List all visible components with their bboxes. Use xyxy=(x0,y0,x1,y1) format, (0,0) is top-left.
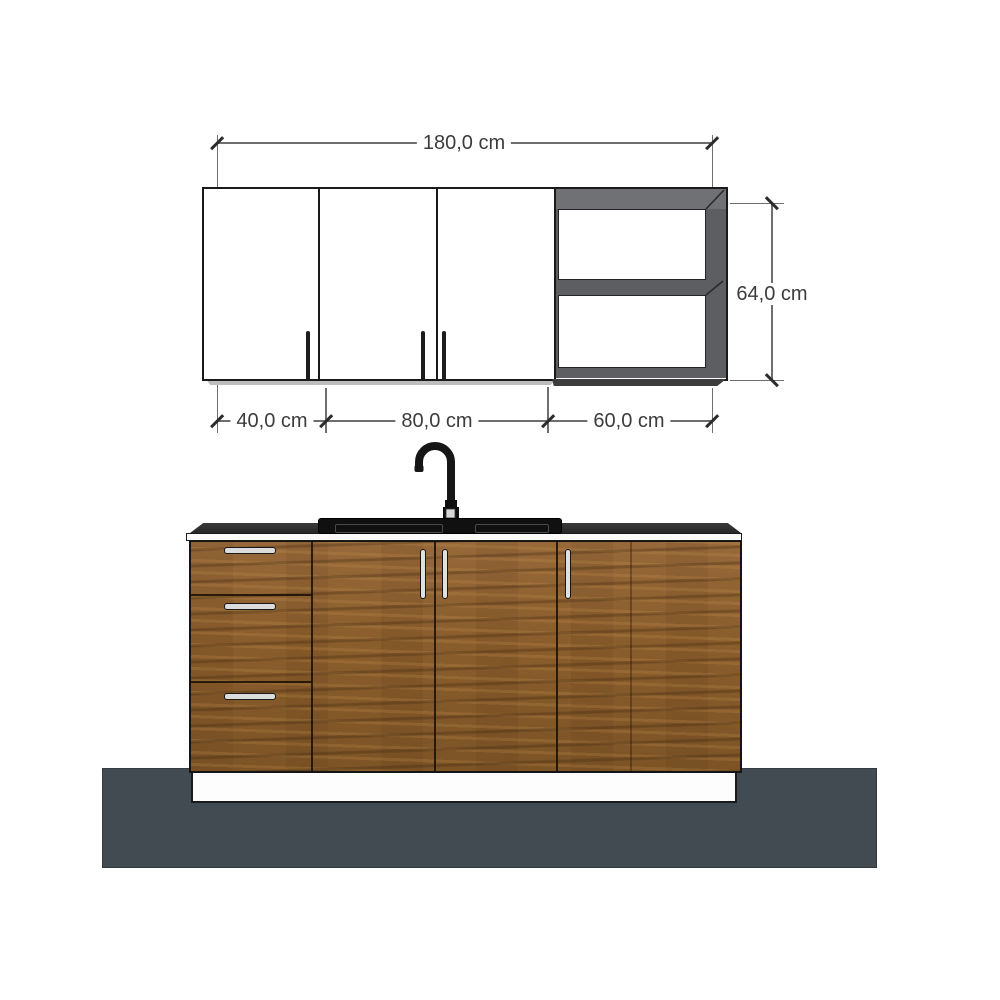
wall-cabinet-divider xyxy=(318,189,320,379)
sink-basin-outline xyxy=(475,524,549,533)
extension-line xyxy=(325,388,327,433)
wall-door-handle-2 xyxy=(421,331,425,384)
drawer-divider xyxy=(189,594,312,596)
extension-line xyxy=(730,380,784,382)
wall-cabinet-divider xyxy=(436,189,438,379)
faucet xyxy=(405,436,469,522)
base-door-handle-2 xyxy=(442,549,448,599)
shelf-unit-shadow xyxy=(552,379,726,386)
wall-door-handle-1 xyxy=(306,331,310,384)
dimension-label-total-width: 180,0 cm xyxy=(417,132,511,154)
wall-door-handle-3 xyxy=(442,331,446,384)
base-cabinet-plinth xyxy=(191,772,737,803)
base-cabinet-divider xyxy=(556,540,558,773)
extension-line xyxy=(712,388,714,433)
base-cabinet-divider xyxy=(434,540,436,773)
wall-cabinet-shadow xyxy=(207,381,554,385)
dimension-label-section-40: 40,0 cm xyxy=(230,410,313,432)
sink xyxy=(318,518,562,534)
extension-line xyxy=(217,385,219,433)
base-cabinet xyxy=(189,540,742,773)
countertop-front-edge xyxy=(186,533,742,541)
shelf-bevel-lines xyxy=(554,187,728,381)
sink-basin-outline xyxy=(335,524,443,533)
kitchen-elevation-drawing: 180,0 cm 64,0 cm 40,0 cm 80,0 cm 60,0 cm xyxy=(0,0,1000,1000)
drawer-handle-3 xyxy=(224,693,276,700)
drawer-handle-2 xyxy=(224,603,276,610)
dimension-label-section-60: 60,0 cm xyxy=(587,410,670,432)
drawer-divider xyxy=(189,681,312,683)
dimension-label-section-80: 80,0 cm xyxy=(395,410,478,432)
dimension-label-upper-height: 64,0 cm xyxy=(730,283,813,305)
base-cabinet-panel-seam xyxy=(630,540,632,773)
extension-line xyxy=(730,203,784,205)
base-door-handle-1 xyxy=(420,549,426,599)
base-cabinet-divider xyxy=(311,540,313,773)
extension-line xyxy=(547,387,549,433)
drawer-handle-1 xyxy=(224,547,276,554)
base-door-handle-3 xyxy=(565,549,571,599)
